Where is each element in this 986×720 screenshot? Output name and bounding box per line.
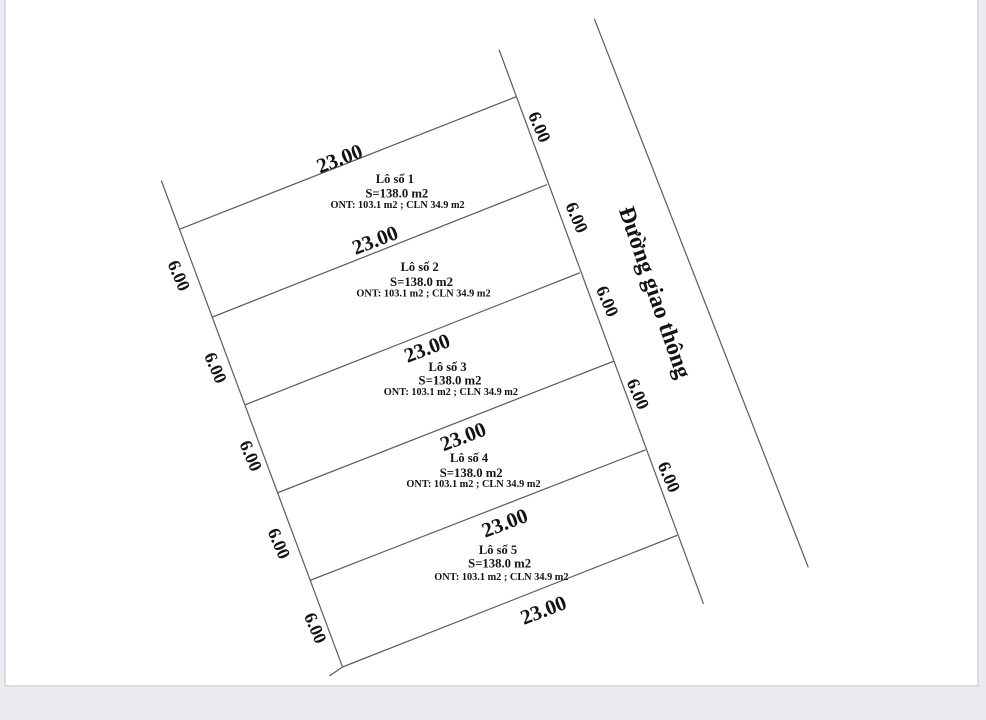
svg-text:ONT: 103.1 m2 ; CLN 34.9 m2: ONT: 103.1 m2 ; CLN 34.9 m2: [356, 288, 490, 299]
svg-text:Lô số 3: Lô số 3: [428, 360, 466, 374]
svg-text:Lô số 2: Lô số 2: [401, 260, 439, 274]
svg-text:Lô số 4: Lô số 4: [450, 451, 489, 465]
svg-text:S=138.0 m2: S=138.0 m2: [365, 187, 428, 201]
svg-text:S=138.0 m2: S=138.0 m2: [468, 557, 531, 571]
svg-text:ONT: 103.1 m2 ; CLN 34.9 m2: ONT: 103.1 m2 ; CLN 34.9 m2: [406, 479, 540, 490]
svg-text:Lô số 5: Lô số 5: [479, 543, 517, 557]
svg-text:S=138.0 m2: S=138.0 m2: [390, 275, 453, 289]
svg-text:ONT: 103.1 m2 ; CLN 34.9 m2: ONT: 103.1 m2 ; CLN 34.9 m2: [434, 572, 568, 583]
svg-text:S=138.0 m2: S=138.0 m2: [419, 374, 482, 388]
svg-text:Lô số 1: Lô số 1: [376, 172, 414, 186]
svg-text:ONT: 103.1 m2 ; CLN 34.9 m2: ONT: 103.1 m2 ; CLN 34.9 m2: [384, 387, 518, 398]
svg-text:ONT: 103.1 m2 ; CLN 34.9 m2: ONT: 103.1 m2 ; CLN 34.9 m2: [330, 200, 464, 211]
